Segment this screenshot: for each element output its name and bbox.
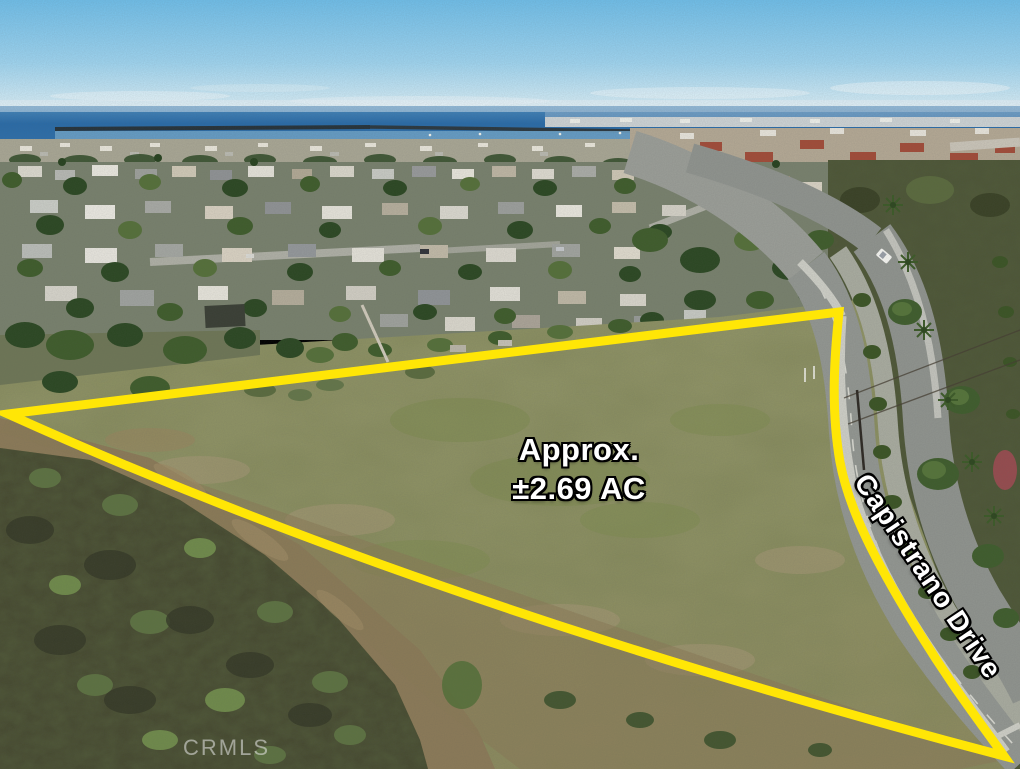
- aerial-photo-scene: [0, 0, 1020, 769]
- listing-aerial-photo: Approx. ±2.69 AC Capistrano Drive CRMLS: [0, 0, 1020, 769]
- photo-grain: [0, 0, 1020, 769]
- acreage-label-line2: ±2.69 AC: [448, 469, 710, 508]
- acreage-label: Approx. ±2.69 AC: [448, 430, 710, 508]
- crmls-watermark: CRMLS: [183, 735, 270, 761]
- acreage-label-line1: Approx.: [448, 430, 710, 469]
